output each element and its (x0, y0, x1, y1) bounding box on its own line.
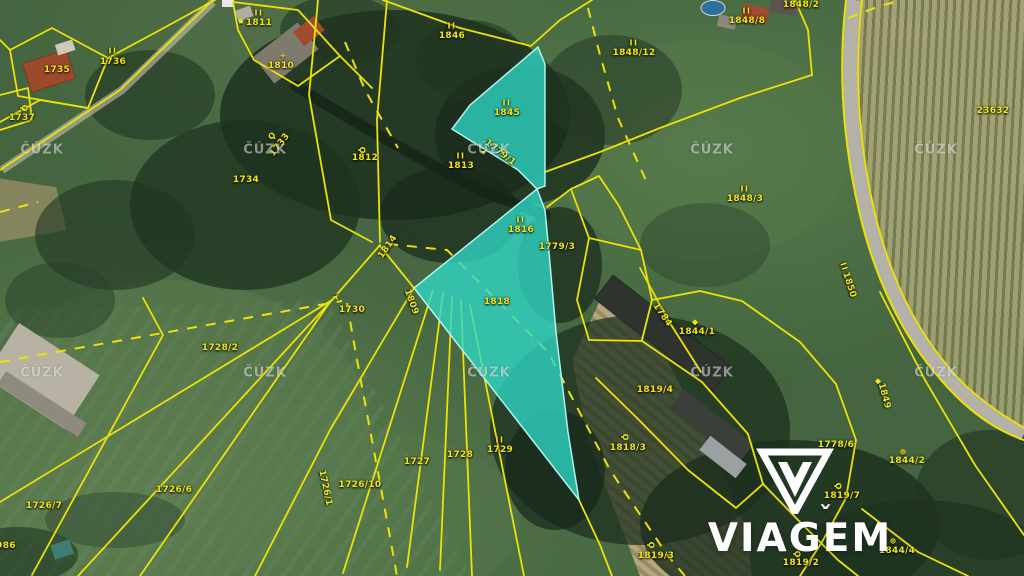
swimming-pool (701, 1, 725, 16)
map-canvas[interactable]: 1735II17361737II1811181017331734II1846II… (0, 0, 1024, 576)
viagem-logo-icon (705, 444, 895, 514)
logo-brand-text: VIAGEM (708, 516, 892, 561)
viagem-logo: ˇ VIAGEM (705, 444, 895, 559)
